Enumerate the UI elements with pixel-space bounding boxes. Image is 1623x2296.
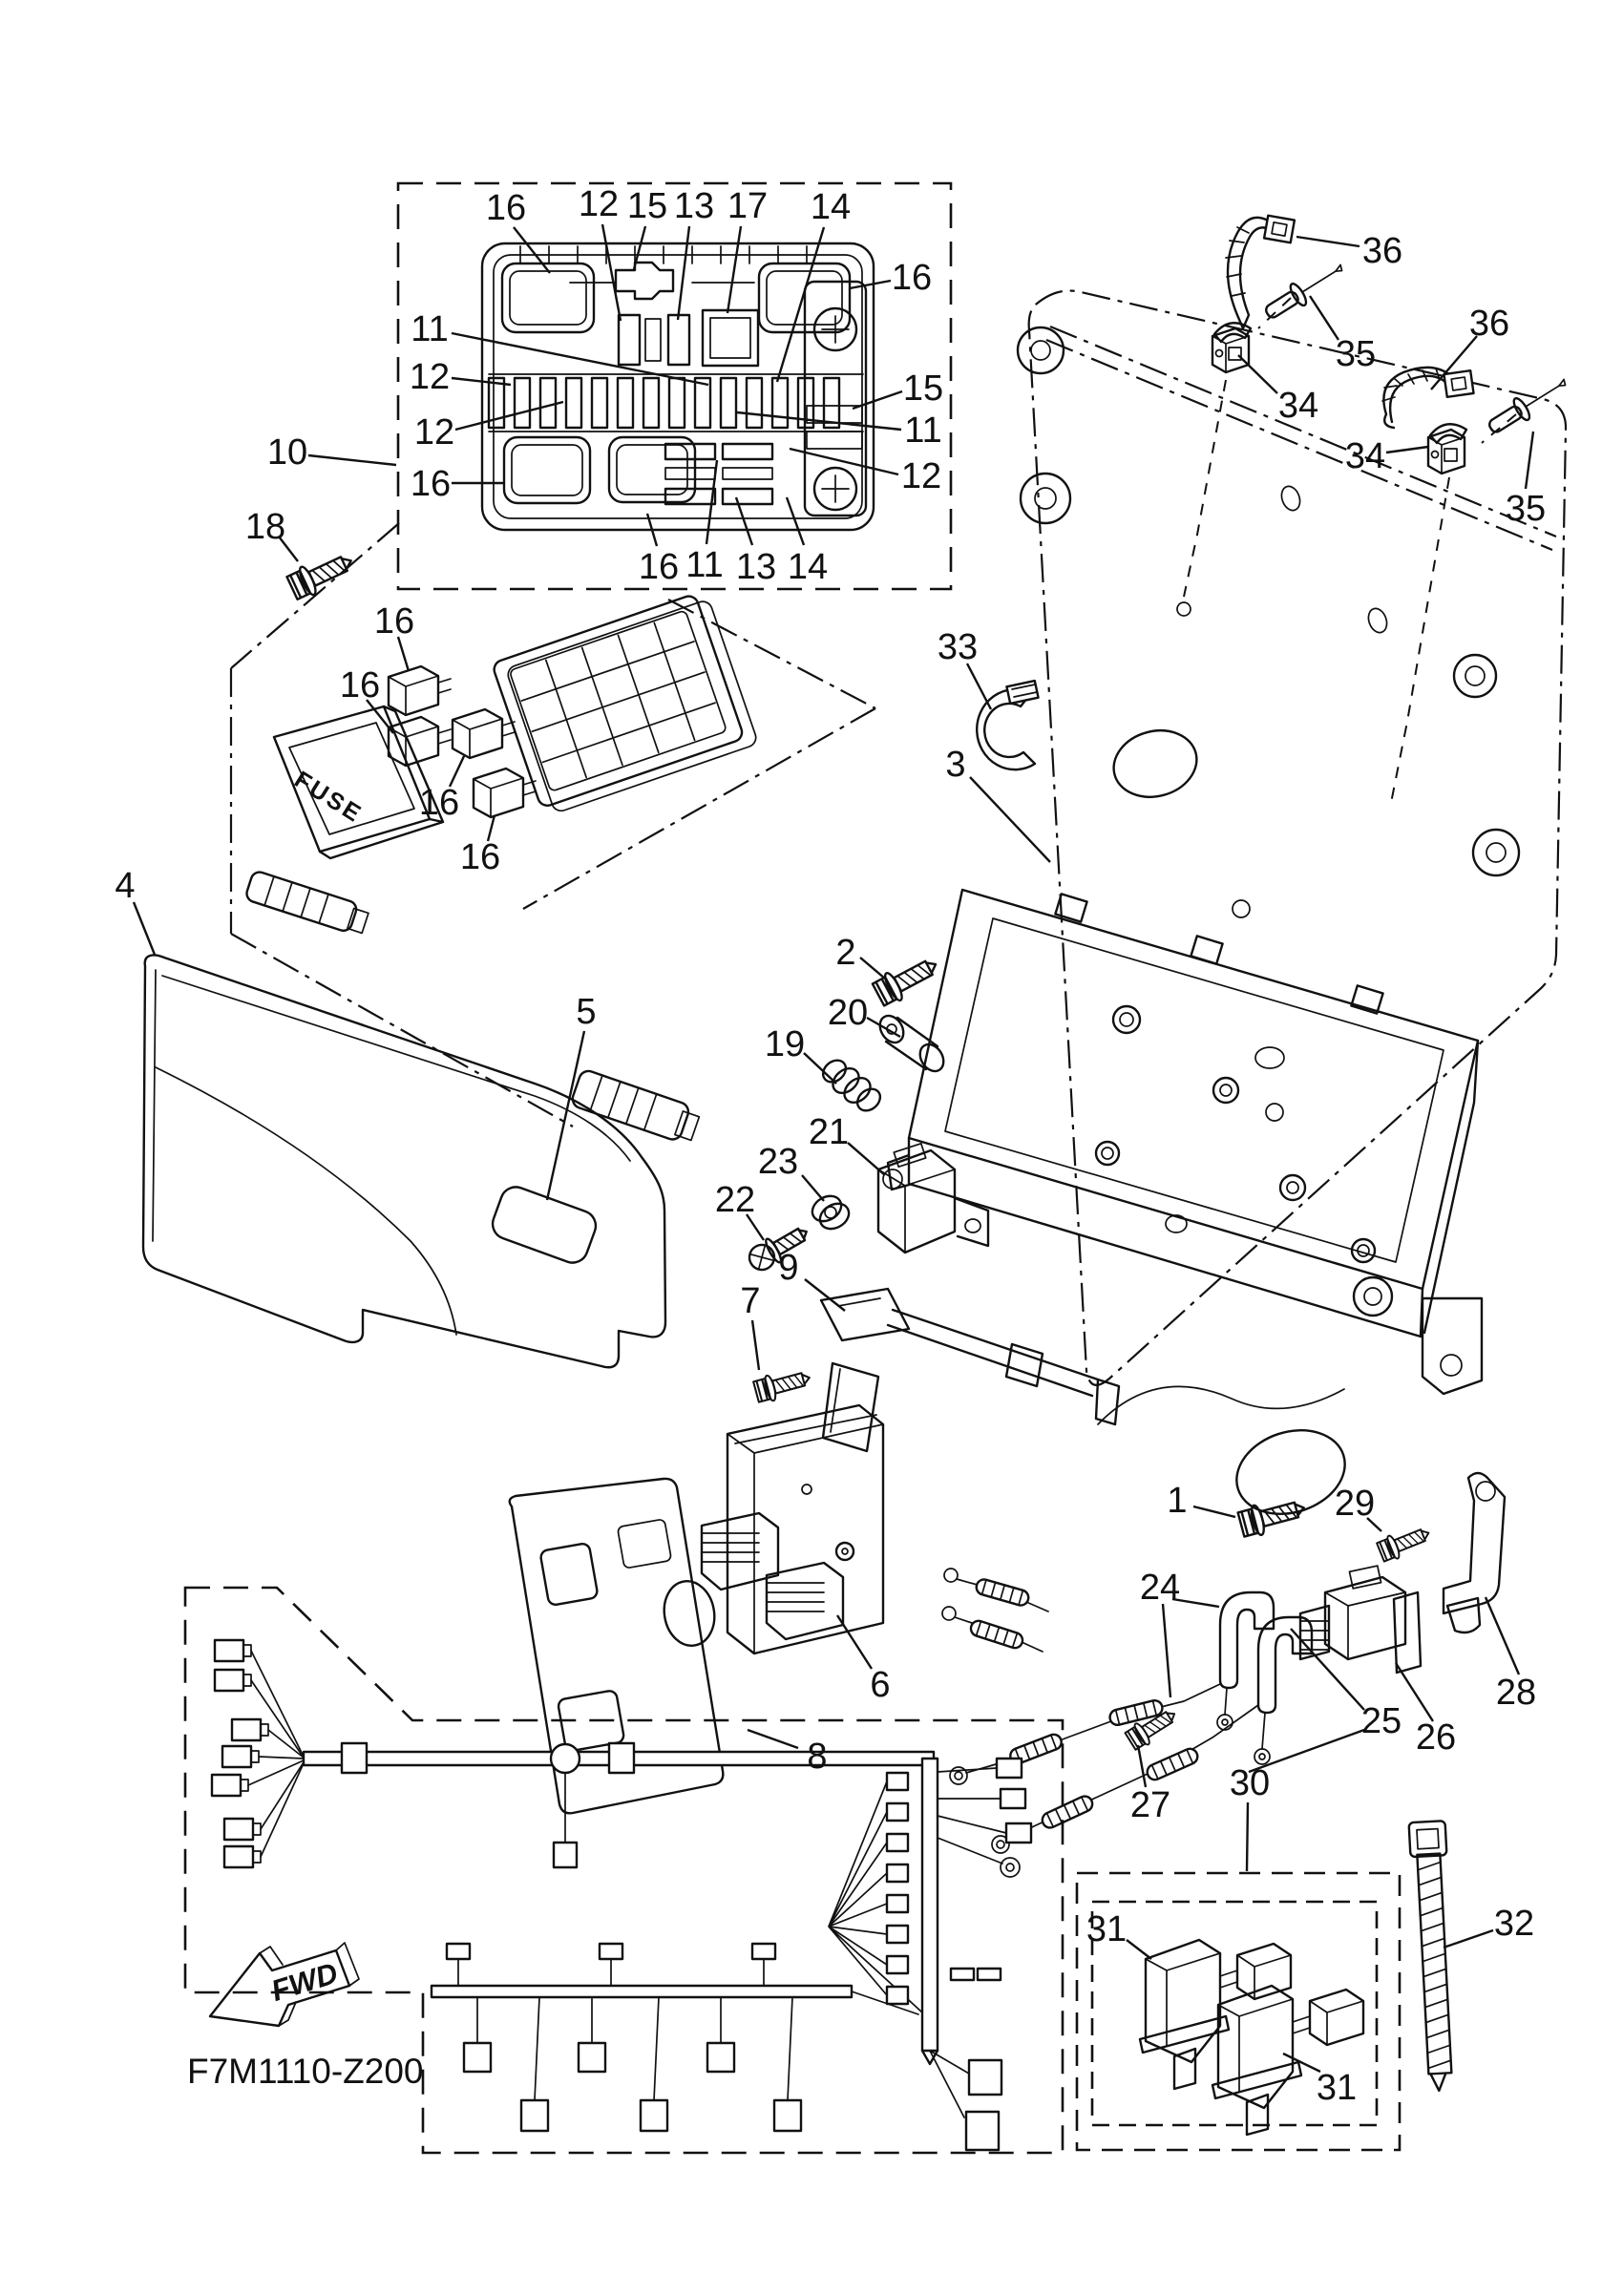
- callout-number: 26: [1416, 1717, 1456, 1758]
- callout-number: 12: [410, 357, 450, 397]
- leader-line: [970, 777, 1050, 862]
- leader-line: [802, 1175, 824, 1201]
- callout-number: 36: [1469, 304, 1509, 344]
- callout-number: 3: [945, 745, 965, 785]
- callout-number: 35: [1336, 334, 1376, 374]
- tie-mount: [1428, 424, 1466, 474]
- leader-line: [860, 958, 885, 979]
- electrical-cover: [143, 870, 702, 1367]
- callout-number: 30: [1230, 1763, 1270, 1803]
- callout-layer: 1612151317141611121216101511121611131418…: [115, 184, 1546, 2108]
- leader-line: [1526, 432, 1533, 489]
- callout-number: 15: [903, 369, 943, 409]
- leader-line: [1444, 1930, 1493, 1948]
- bracket-28: [1444, 1473, 1505, 1632]
- callout-number: 12: [579, 184, 619, 224]
- leader-line: [514, 227, 550, 273]
- callout-number: 11: [904, 411, 941, 451]
- callout-number: 34: [1345, 436, 1385, 476]
- leader-line: [837, 1615, 872, 1669]
- relay: [389, 666, 451, 715]
- callout-number: 14: [811, 187, 851, 227]
- leader-line: [787, 497, 804, 545]
- callout-number: 16: [460, 837, 500, 877]
- callout-number: 16: [639, 547, 679, 587]
- fusebox-cover-top-view: [482, 243, 874, 530]
- callout-number: 35: [1506, 489, 1546, 529]
- ecu-unit: [702, 1405, 883, 1654]
- callout-number: 16: [892, 258, 932, 298]
- cable-tie-32: [1409, 1821, 1460, 2092]
- callout-number: 13: [674, 186, 714, 226]
- bracket-9: [821, 1289, 1119, 1451]
- leader-line: [752, 1320, 759, 1370]
- grommet-19: [819, 1056, 885, 1115]
- callout-number: 9: [778, 1248, 798, 1288]
- callout-number: 1: [1167, 1481, 1187, 1521]
- relay: [453, 709, 515, 758]
- leader-line: [398, 637, 409, 671]
- callout-number: 8: [807, 1737, 827, 1777]
- callout-number: 4: [115, 866, 135, 906]
- drawing-code: F7M1110-Z200: [187, 2052, 423, 2091]
- callout-number: 16: [419, 783, 459, 823]
- callout-number: 17: [727, 186, 768, 226]
- fuse-cover: FUSE: [274, 706, 443, 858]
- callout-number: 21: [809, 1112, 849, 1152]
- bolt-1: [1237, 1493, 1308, 1540]
- leader-line: [1138, 1745, 1146, 1787]
- bolt-2: [871, 951, 942, 1008]
- callout-number: 11: [411, 309, 448, 349]
- callout-number: 18: [245, 507, 285, 547]
- callout-number: 7: [740, 1281, 760, 1321]
- callout-number: 15: [627, 186, 667, 226]
- callout-number: 13: [736, 547, 776, 587]
- bracket-tray: [883, 890, 1482, 1394]
- leader-line: [727, 226, 741, 313]
- callout-number: 16: [411, 464, 451, 504]
- clamp-33: [977, 681, 1038, 769]
- leader-line: [1238, 355, 1277, 393]
- callout-number: 31: [1086, 1909, 1127, 1949]
- callout-number: 29: [1335, 1484, 1375, 1524]
- callout-number: 32: [1494, 1904, 1534, 1944]
- relay: [474, 769, 536, 817]
- leader-line: [777, 227, 824, 382]
- callout-number: 12: [901, 456, 941, 496]
- callout-number: 25: [1361, 1701, 1402, 1741]
- fuse-label: FUSE: [289, 766, 368, 828]
- leader-line: [804, 1053, 836, 1084]
- leader-line: [455, 402, 563, 430]
- plug-leads: [942, 1569, 1312, 1853]
- callout-number: 34: [1278, 386, 1318, 426]
- callout-number: 23: [758, 1142, 798, 1182]
- callout-number: 22: [715, 1180, 755, 1220]
- screw-18: [285, 547, 357, 602]
- ignition-coil: [1212, 1986, 1363, 2135]
- callout-number: 16: [374, 601, 414, 642]
- leader-line: [1283, 2054, 1320, 2072]
- leader-line: [853, 391, 902, 409]
- parts-diagram-page: FUSE: [0, 0, 1623, 2296]
- screw-7: [752, 1365, 812, 1404]
- leader-line: [678, 226, 689, 320]
- leader-line: [1486, 1597, 1519, 1675]
- leader-line: [1296, 237, 1360, 246]
- leader-line: [134, 902, 155, 955]
- callout-number: 24: [1140, 1568, 1180, 1608]
- leader-line: [748, 1730, 798, 1748]
- collar-20: [875, 1011, 949, 1075]
- leader-line: [1193, 1506, 1235, 1517]
- callout-number: 10: [267, 432, 307, 473]
- callout-number: 2: [835, 933, 855, 973]
- callout-number: 16: [340, 665, 380, 706]
- callout-number: 33: [938, 627, 978, 667]
- exploded-parts-diagram: FUSE: [0, 0, 1623, 2296]
- callout-number: 14: [788, 547, 828, 587]
- leader-line: [1127, 1940, 1151, 1959]
- apron-panel: [1018, 291, 1566, 1527]
- leader-line: [1310, 296, 1338, 340]
- callout-number: 11: [685, 545, 723, 585]
- screw-29: [1376, 1522, 1433, 1564]
- callout-number: 16: [486, 188, 526, 228]
- callout-number: 19: [765, 1024, 805, 1064]
- callout-number: 27: [1130, 1785, 1170, 1825]
- callout-number: 12: [414, 412, 454, 453]
- washer-23: [808, 1191, 854, 1234]
- fusebox-detail-box: [398, 183, 951, 589]
- callout-number: 28: [1496, 1673, 1536, 1713]
- callout-number: 6: [870, 1665, 890, 1705]
- relay-26: [1300, 1566, 1421, 1673]
- leader-line: [1247, 1802, 1248, 1871]
- leader-line: [967, 664, 991, 709]
- callout-number: 36: [1362, 231, 1402, 271]
- leader-line: [602, 224, 621, 321]
- leader-line: [1386, 447, 1428, 453]
- leader-line: [848, 1143, 885, 1175]
- fwd-arrow: FWD: [210, 1943, 359, 2026]
- ignition-coil: [1140, 1940, 1291, 2089]
- callout-number: 20: [828, 993, 868, 1033]
- callout-number: 31: [1317, 2068, 1357, 2108]
- leader-line: [308, 455, 396, 465]
- fusebox-assembly: FUSE: [274, 590, 758, 858]
- leader-line: [1163, 1604, 1170, 1697]
- callout-number: 5: [576, 992, 596, 1032]
